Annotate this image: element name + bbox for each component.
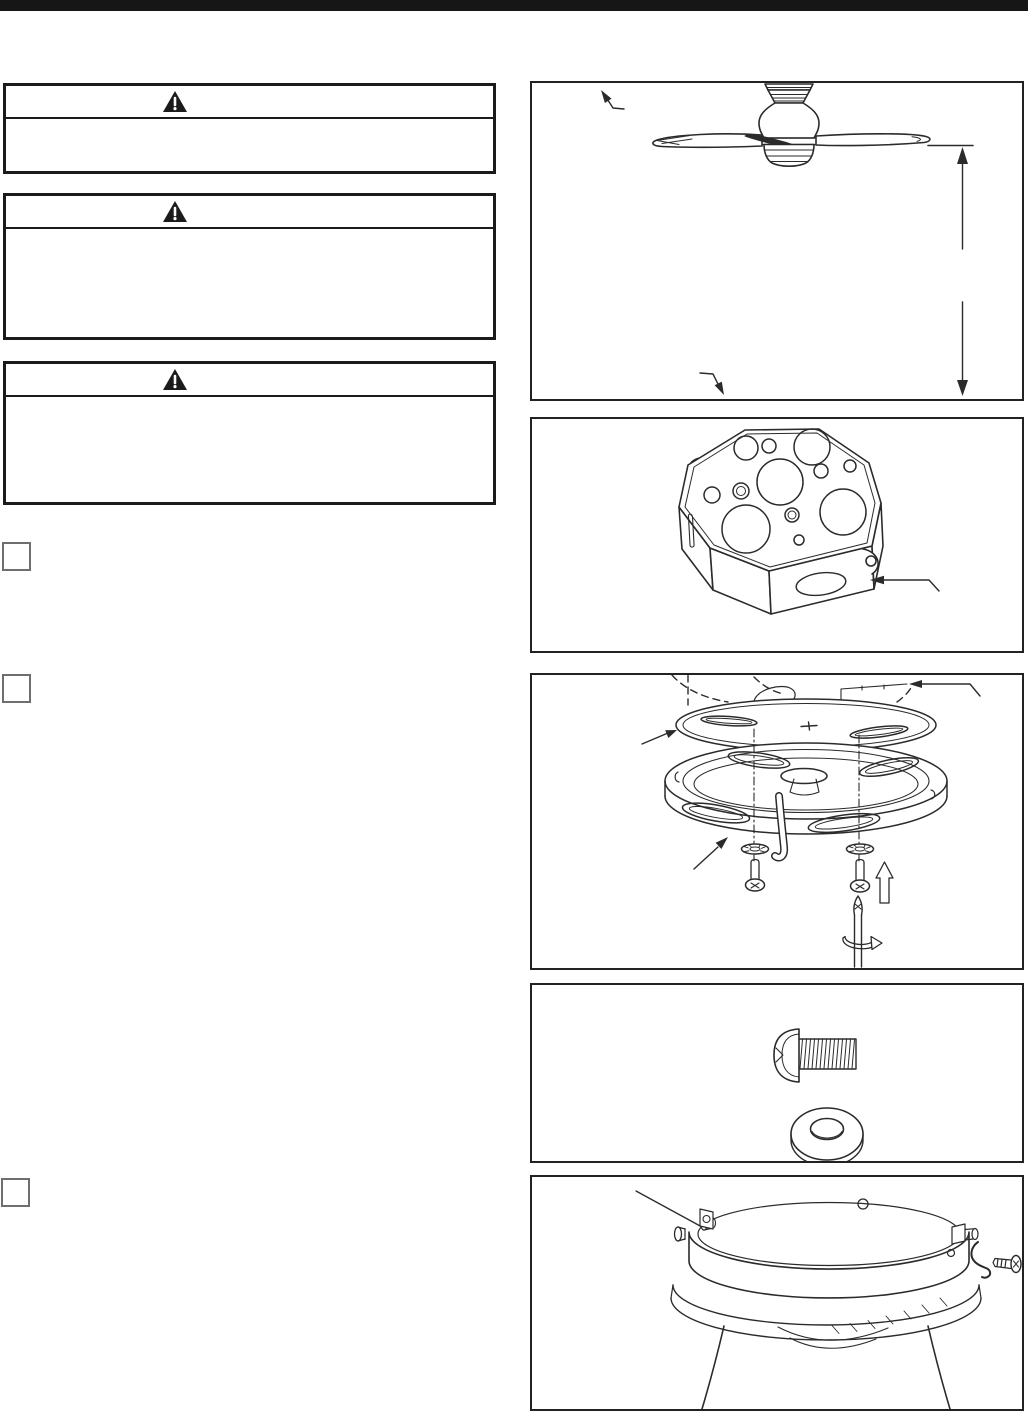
warning-box-1-body [6, 119, 493, 127]
left-ring-screw [675, 1209, 714, 1241]
figure-mounting-ring [530, 1175, 1024, 1411]
bracket-callout-arrow-top [909, 680, 980, 696]
floor-clearance-dimension-arrow [928, 146, 973, 397]
ring-callout-arrow-lower-left [694, 837, 728, 869]
warning-box-2-header [6, 196, 493, 229]
warning-box-3 [3, 361, 496, 505]
ceiling-callout-arrow [601, 90, 624, 109]
outlet-box-drawing [532, 419, 1022, 651]
mounting-ring-drawing [532, 1177, 1022, 1409]
warning-triangle-icon [162, 200, 188, 223]
screw-washer-drawing [532, 985, 1022, 1161]
figure-fan-mounting-height [530, 81, 1024, 401]
figure-outlet-box [530, 417, 1024, 653]
figure-screw-and-washer [530, 983, 1024, 1163]
step-checkbox-3 [1, 1178, 30, 1207]
ceiling-fan-drawing [653, 84, 930, 166]
canopy-plate [676, 687, 936, 751]
spring-clip-wire [971, 1242, 990, 1278]
flat-washer [791, 1108, 863, 1161]
push-up-arrow [876, 862, 893, 903]
step-checkbox-2 [2, 674, 31, 703]
warning-box-1-header [6, 86, 493, 119]
fan-height-drawing [532, 83, 1022, 399]
screwdriver [843, 896, 882, 967]
floor-callout-arrow [700, 373, 724, 395]
bracket-ring [665, 743, 947, 858]
bracket-callout-arrow-left [642, 730, 677, 744]
manual-page [0, 0, 1028, 1412]
motor-housing [671, 1285, 981, 1409]
step-checkbox-1 [2, 542, 31, 571]
warning-box-1 [3, 83, 496, 174]
warning-triangle-icon [162, 90, 188, 113]
warning-box-3-header [6, 364, 493, 397]
warning-box-2 [3, 193, 496, 340]
figure-mounting-bracket [530, 673, 1024, 970]
warning-box-3-body [6, 397, 493, 405]
warning-box-2-body [6, 229, 493, 237]
mounting-bracket-drawing [532, 675, 1022, 968]
warning-triangle-icon [162, 368, 188, 391]
octagon-box-body [679, 429, 883, 614]
machine-screw [774, 1029, 856, 1082]
mounting-ring-band [689, 1199, 969, 1298]
page-header-bar [0, 0, 1028, 11]
outlet-box-callout-arrow [870, 576, 939, 591]
